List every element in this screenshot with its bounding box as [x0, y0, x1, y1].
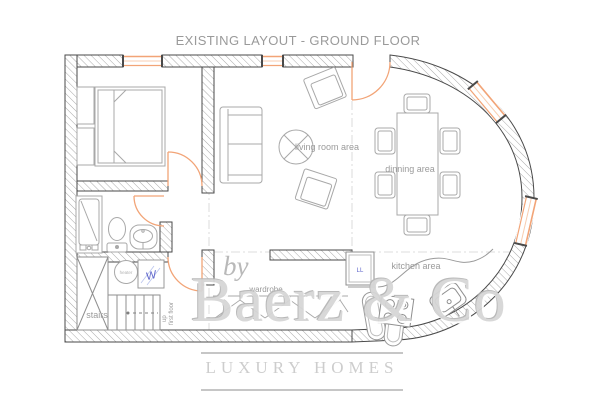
dining-label: dinning area [385, 164, 435, 174]
bathtub [76, 196, 102, 253]
watermark-tagline: LUXURY HOMES [197, 358, 407, 378]
dining-chair-right-1 [440, 128, 460, 154]
sink [130, 225, 157, 249]
floorplan-page: EXISTING LAYOUT - GROUND FLOOR [0, 0, 600, 408]
wall-bedroom-right [202, 67, 214, 193]
watermark-rule-top [201, 352, 403, 354]
door-bedroom [168, 152, 202, 186]
door-entry [352, 62, 390, 100]
armchair-top [303, 67, 347, 109]
wall-top-right [283, 55, 353, 67]
floorplan-drawing: EXISTING LAYOUT - GROUND FLOOR [0, 0, 600, 408]
bedroom-furniture [77, 87, 165, 166]
stairs-first-floor-label: first floor [169, 302, 175, 325]
nightstand-bottom [77, 128, 94, 165]
wall-left [65, 55, 77, 342]
dining-chair-top [404, 94, 430, 113]
washing-machine: W [138, 260, 164, 288]
watermark-rule-bottom [201, 389, 403, 391]
dining-chair-left-1 [375, 128, 395, 154]
double-bed [95, 87, 165, 166]
dining-chair-right-2 [440, 172, 460, 198]
wall-top-middle [162, 55, 262, 67]
stairs-up-label: up [162, 315, 168, 322]
sofa [220, 107, 262, 183]
watermark-brand: Baerz & Co [191, 268, 507, 332]
window-living [262, 55, 283, 67]
window-bedroom [123, 55, 162, 67]
window-curve-lower [514, 196, 537, 246]
dining-chair-left-2 [375, 172, 395, 198]
wall-bedroom-bottom [77, 181, 168, 191]
drawing-title: EXISTING LAYOUT - GROUND FLOOR [176, 33, 421, 48]
heater-label: heater [120, 270, 133, 275]
armchair-bottom [295, 169, 337, 210]
utility-area: heater W [115, 260, 165, 288]
window-curve-upper [468, 81, 506, 123]
nightstand-top [77, 87, 94, 124]
wall-wardrobe-top [270, 250, 352, 260]
dining-chair-bottom [404, 215, 430, 235]
living-room-label: living room area [295, 142, 359, 152]
toilet [107, 218, 127, 253]
stairs-label: stairs [86, 310, 108, 320]
living-room-furniture [220, 67, 347, 210]
bathroom-fixtures [76, 196, 157, 253]
